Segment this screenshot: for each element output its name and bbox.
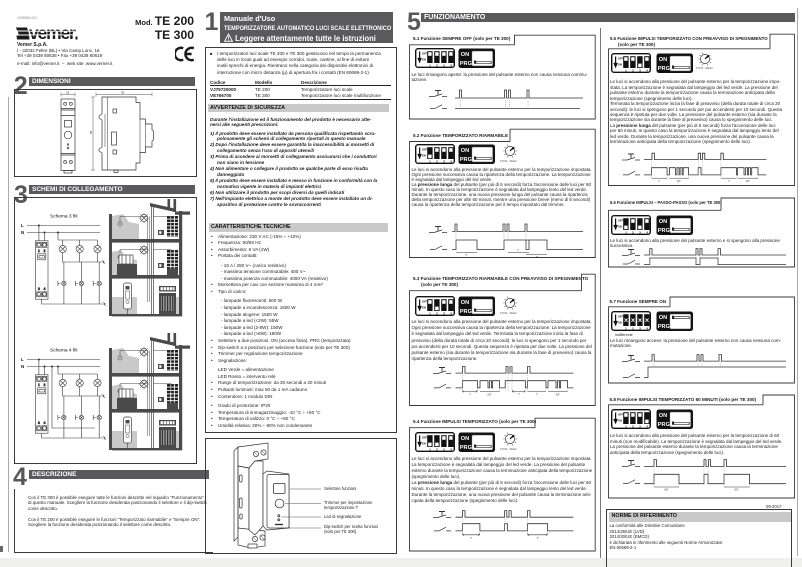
svg-text:T: T (536, 255, 538, 259)
svg-text:T: T (537, 536, 539, 540)
svg-text:20": 20" (556, 393, 560, 397)
svg-text:85: 85 (89, 130, 93, 134)
svg-text:L: L (21, 223, 24, 228)
svg-text:65: 65 (121, 91, 125, 95)
svg-text:T: T (465, 253, 467, 257)
svg-text:T: T (470, 536, 472, 540)
svg-text:4: 4 (44, 421, 46, 425)
svg-text:60': 60' (665, 487, 669, 491)
svg-text:N: N (21, 364, 24, 369)
svg-text:10": 10" (677, 179, 681, 183)
svg-text:20": 20" (487, 393, 491, 397)
svg-text:vemer: vemer (29, 24, 76, 41)
svg-text:T: T (536, 393, 538, 397)
svg-text:10": 10" (746, 179, 750, 183)
svg-text:Schema 3 fili: Schema 3 fili (50, 214, 77, 220)
svg-text:Schema 4 fili: Schema 4 fili (50, 348, 77, 354)
svg-text:T: T (728, 179, 730, 183)
svg-text:4: 4 (44, 287, 46, 291)
svg-text:60': 60' (735, 487, 739, 491)
svg-text:T: T (517, 249, 519, 253)
svg-text:T: T (518, 393, 520, 397)
svg-text:18: 18 (66, 91, 70, 95)
svg-text:T: T (469, 393, 471, 397)
svg-text:L: L (21, 357, 24, 362)
svg-text:2: 2 (44, 383, 46, 387)
svg-text:1: 1 (38, 249, 40, 253)
svg-text:T: T (658, 179, 660, 183)
svg-text:1: 1 (38, 383, 40, 387)
svg-text:3: 3 (38, 287, 40, 291)
svg-text:N: N (21, 230, 24, 235)
svg-text:2: 2 (44, 249, 46, 253)
svg-text:3: 3 (38, 421, 40, 425)
